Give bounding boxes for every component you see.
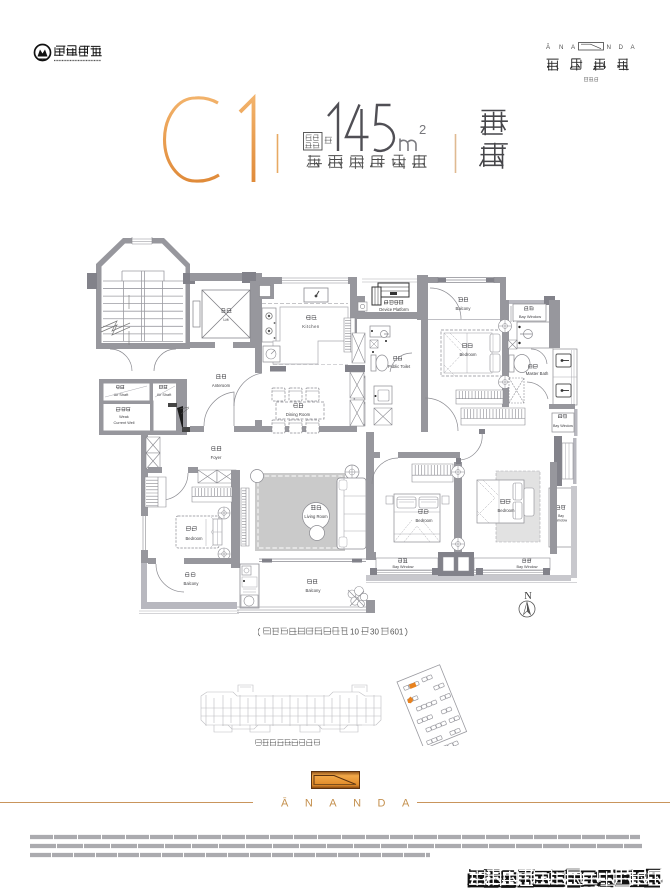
- svg-text:Air Shaft: Air Shaft: [114, 393, 130, 397]
- svg-text:601: 601: [390, 628, 404, 637]
- svg-text:Living Room: Living Room: [304, 514, 328, 519]
- svg-text:Device Platform: Device Platform: [379, 307, 409, 312]
- svg-text:Balcony: Balcony: [306, 588, 322, 593]
- svg-text:Bay Window: Bay Window: [392, 565, 413, 569]
- svg-text:A: A: [571, 44, 576, 51]
- svg-text:Bedroom: Bedroom: [460, 352, 478, 357]
- svg-text:ĀNANDA: ĀNANDA: [281, 798, 426, 810]
- svg-text:Ā: Ā: [546, 44, 551, 51]
- svg-text:Kitchen: Kitchen: [302, 324, 320, 329]
- svg-text:Dining Room: Dining Room: [286, 412, 311, 417]
- svg-text:30: 30: [370, 628, 379, 637]
- svg-text:Lift: Lift: [223, 317, 229, 322]
- svg-text:Balcony: Balcony: [184, 581, 200, 586]
- svg-text:Master Bath: Master Bath: [526, 371, 549, 376]
- svg-text:Balcony: Balcony: [456, 306, 472, 311]
- svg-text:N: N: [524, 591, 532, 602]
- svg-text:Bedroom: Bedroom: [186, 536, 204, 541]
- svg-text:2: 2: [419, 122, 426, 137]
- svg-text:N: N: [559, 44, 563, 51]
- svg-text:Weak: Weak: [119, 415, 129, 419]
- svg-text:Bay Window: Bay Window: [519, 314, 541, 319]
- svg-text:A: A: [631, 44, 636, 51]
- svg-text:Anteroom: Anteroom: [212, 383, 231, 388]
- svg-text:Bay Window: Bay Window: [516, 565, 537, 569]
- svg-text:Bay: Bay: [558, 514, 564, 518]
- svg-text:Current Well: Current Well: [113, 421, 134, 425]
- svg-text:Bay Window: Bay Window: [553, 424, 573, 428]
- svg-text:N: N: [607, 44, 611, 51]
- svg-text:Foyer: Foyer: [211, 455, 222, 460]
- svg-text:D: D: [619, 44, 624, 51]
- svg-text:10: 10: [350, 628, 359, 637]
- svg-text:Bedroom: Bedroom: [416, 518, 434, 523]
- svg-text:Bedroom: Bedroom: [498, 508, 516, 513]
